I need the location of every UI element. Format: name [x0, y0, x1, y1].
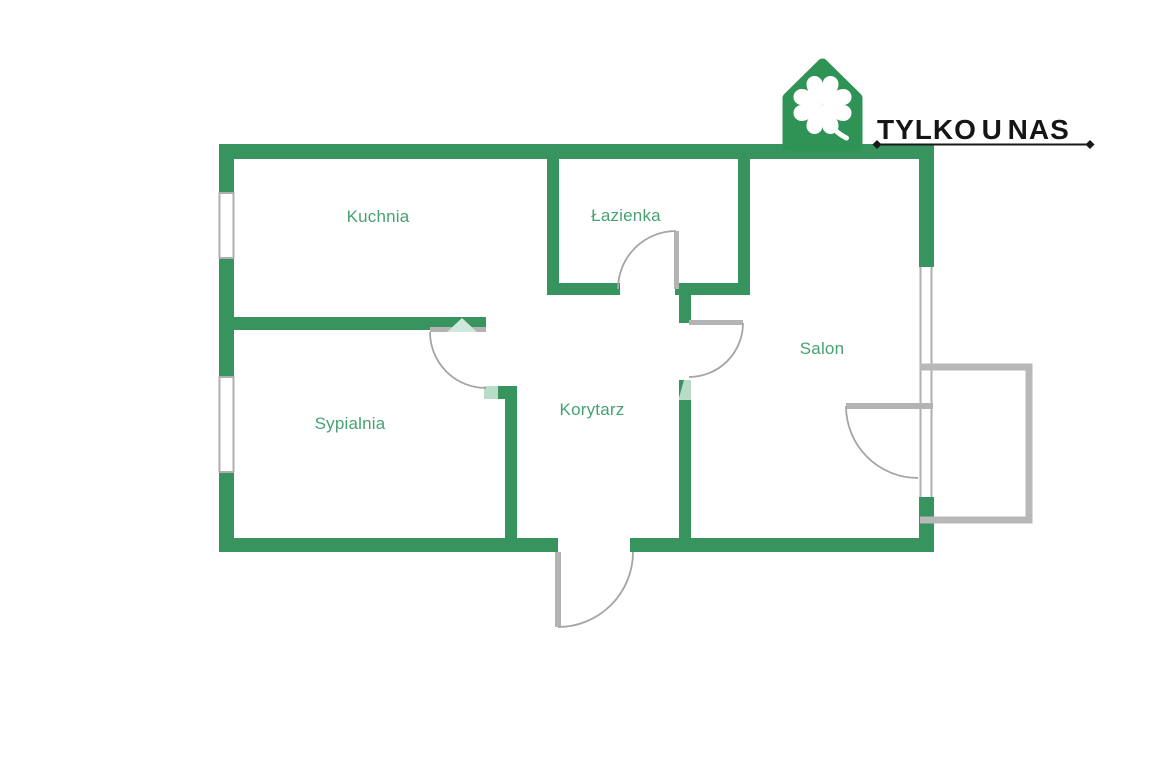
wall-bottom-right [630, 538, 934, 552]
door-entrance [555, 552, 633, 627]
door-balcony-leaf [846, 403, 933, 409]
room-label-salon: Salon [800, 339, 844, 359]
room-label-kuchnia: Kuchnia [347, 207, 410, 227]
door-lazienka-arc [618, 231, 676, 289]
window-left-lower [220, 377, 234, 472]
room-label-korytarz: Korytarz [560, 400, 625, 420]
door-sypialnia-arc [430, 332, 486, 388]
wall-bathroom-bottom-right [675, 283, 750, 295]
door-balcony-arc [846, 406, 918, 478]
room-label-sypialnia: Sypialnia [315, 414, 386, 434]
wall-bathroom-bottom-left [547, 283, 620, 295]
wall-bathroom-right [738, 159, 750, 295]
door-lazienka-leaf [674, 231, 679, 289]
room-label-lazienka: Łazienka [591, 206, 661, 226]
door-sypialnia [430, 318, 486, 388]
door-lazienka [618, 231, 679, 289]
door-entrance-leaf [555, 552, 561, 627]
brand-text: TYLKO U NAS [877, 114, 1070, 146]
door-salon-arc [689, 323, 743, 377]
logo-underline-right-diamond-icon [1085, 140, 1094, 149]
wall-sypialnia-stub [498, 386, 517, 399]
window-left-upper [220, 193, 234, 258]
wall-salon-divider-lower [679, 400, 691, 538]
wall-sypialnia-stub-cap [484, 386, 498, 399]
interior-walls [233, 159, 750, 538]
floor-plan-page: Kuchnia Łazienka Salon Sypialnia Korytar… [0, 0, 1170, 773]
balcony-outline [920, 367, 1029, 520]
wall-salon-divider-upper [679, 295, 691, 323]
door-salon-leaf [689, 320, 743, 325]
window-right-balcony [918, 267, 935, 497]
door-salon [689, 320, 743, 377]
wall-bathroom-left [547, 159, 559, 295]
door-entrance-arc [558, 552, 633, 627]
wall-bottom-left [219, 538, 558, 552]
wall-sypialnia-vertical [505, 399, 517, 538]
